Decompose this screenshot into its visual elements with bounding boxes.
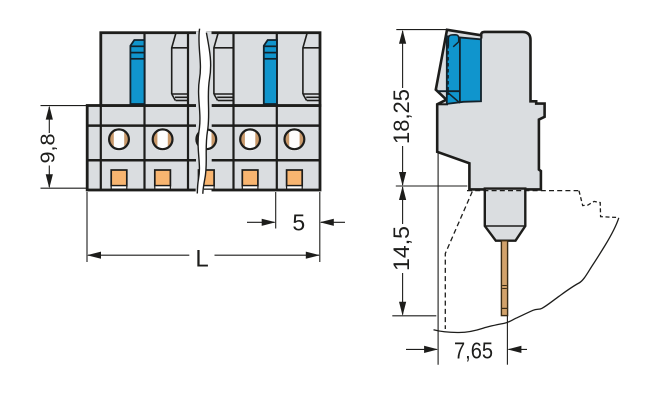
svg-text:18,25: 18,25 [389,89,414,144]
svg-text:5: 5 [292,209,305,235]
svg-text:9,8: 9,8 [38,134,60,164]
svg-text:L: L [195,245,208,272]
svg-text:7,65: 7,65 [454,337,493,363]
svg-text:14,5: 14,5 [389,226,414,271]
